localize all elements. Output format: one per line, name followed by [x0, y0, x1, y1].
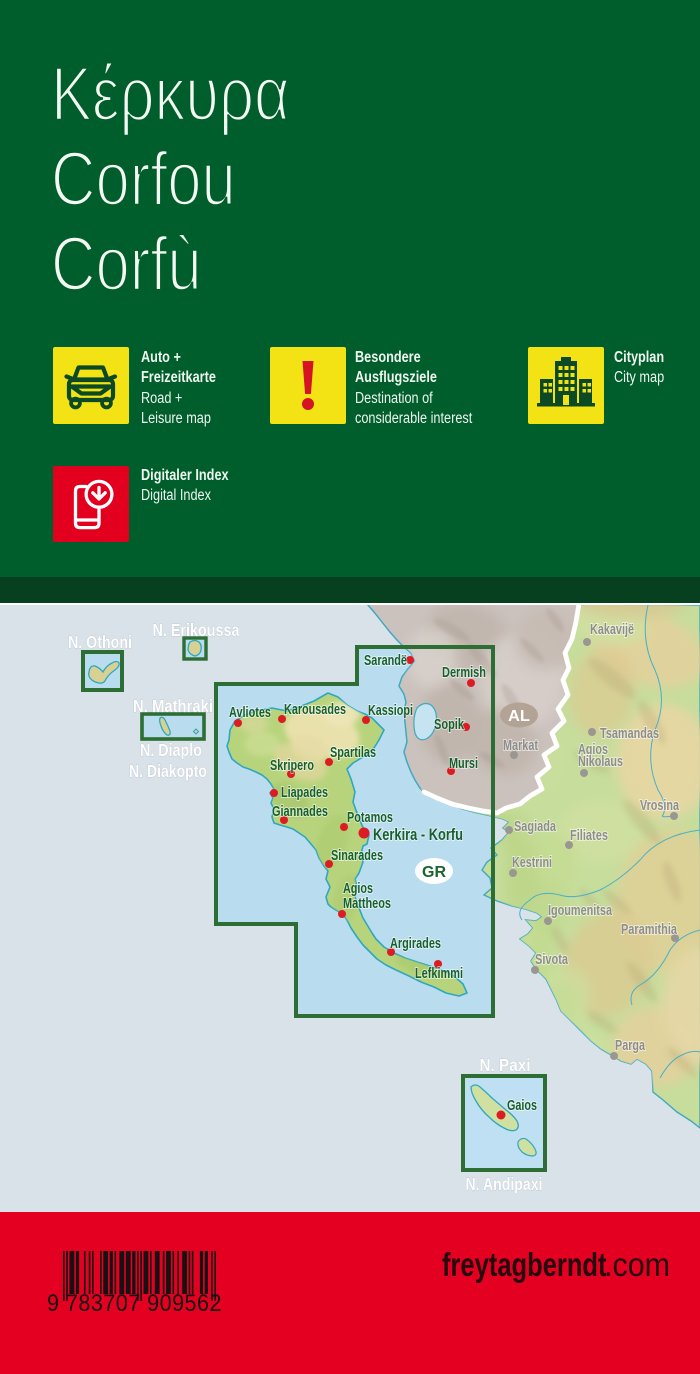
svg-text:Gaios: Gaios: [507, 1098, 537, 1114]
svg-text:Kestrini: Kestrini: [512, 855, 552, 871]
svg-text:Avliotes: Avliotes: [229, 705, 271, 721]
svg-text:Sinarades: Sinarades: [331, 848, 383, 864]
svg-text:N. Mathraki: N. Mathraki: [133, 696, 213, 716]
svg-text:Karousades: Karousades: [284, 702, 346, 718]
svg-text:Spartilas: Spartilas: [330, 745, 376, 761]
svg-text:Liapades: Liapades: [281, 785, 328, 801]
svg-text:N. Diaplo: N. Diaplo: [140, 740, 202, 760]
svg-text:Igoumenitsa: Igoumenitsa: [548, 903, 613, 919]
svg-text:Kerkira - Korfu: Kerkira - Korfu: [373, 825, 463, 844]
svg-text:Lefkimmi: Lefkimmi: [415, 966, 463, 982]
svg-text:N. Othoni: N. Othoni: [68, 632, 132, 652]
svg-text:Kakavijë: Kakavijë: [590, 622, 634, 638]
svg-text:Potamos: Potamos: [347, 810, 393, 826]
svg-text:Sopik: Sopik: [434, 717, 465, 733]
svg-text:GR: GR: [422, 864, 446, 881]
svg-text:Dermish: Dermish: [442, 665, 486, 681]
svg-text:Vrosina: Vrosina: [640, 798, 680, 814]
svg-text:N. Erikoussa: N. Erikoussa: [153, 620, 240, 640]
svg-text:Sarandë: Sarandë: [364, 653, 407, 669]
svg-text:AL: AL: [508, 708, 530, 725]
svg-text:Tsamandas: Tsamandas: [600, 726, 659, 742]
svg-text:Markat: Markat: [503, 738, 538, 754]
svg-text:Kassiopi: Kassiopi: [368, 703, 413, 719]
svg-text:Paramithia: Paramithia: [621, 922, 678, 938]
svg-text:Mursi: Mursi: [449, 756, 478, 772]
svg-text:N. Andipaxi: N. Andipaxi: [466, 1174, 543, 1194]
svg-text:N. Diakopto: N. Diakopto: [129, 761, 207, 781]
svg-text:Nikolaus: Nikolaus: [578, 754, 623, 770]
svg-text:Skripero: Skripero: [270, 758, 314, 774]
svg-text:Parga: Parga: [615, 1038, 646, 1054]
svg-text:Sivota: Sivota: [535, 952, 569, 968]
svg-text:Sagiada: Sagiada: [514, 819, 557, 835]
svg-text:Agios: Agios: [343, 881, 373, 897]
svg-text:Argirades: Argirades: [390, 936, 441, 952]
svg-text:Filiates: Filiates: [570, 828, 608, 844]
svg-text:Mattheos: Mattheos: [343, 896, 391, 912]
svg-text:N. Paxi: N. Paxi: [480, 1055, 531, 1075]
svg-text:Giannades: Giannades: [272, 804, 328, 820]
